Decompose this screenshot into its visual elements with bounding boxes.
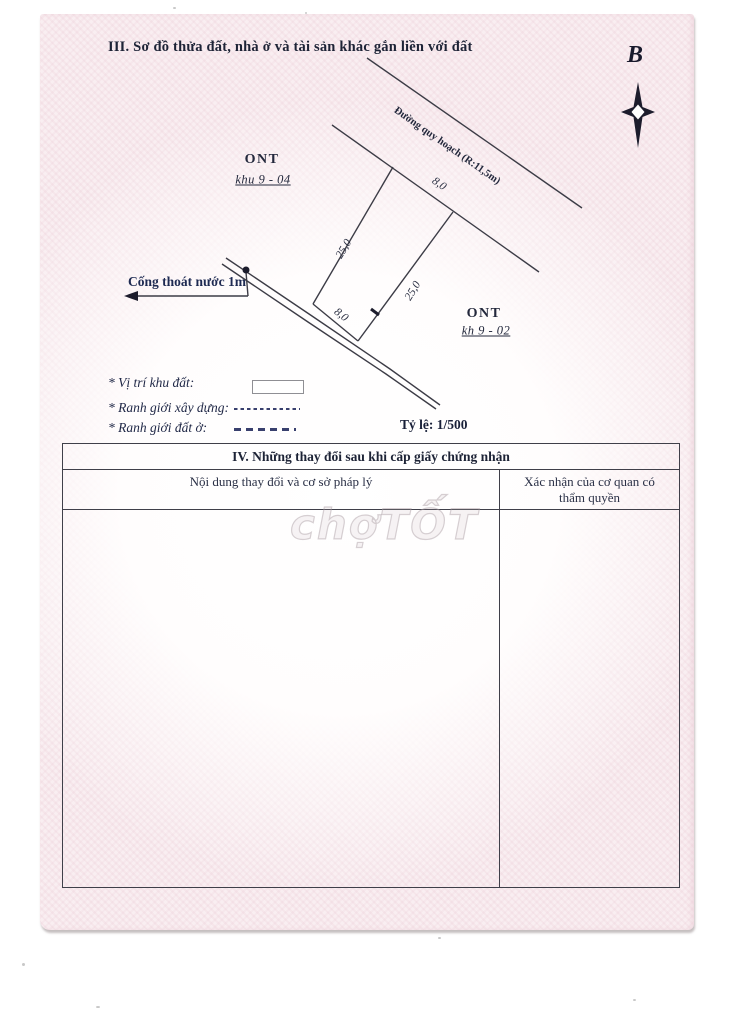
zone-right-name: ONT xyxy=(467,306,502,322)
legend-item-residential-boundary: * Ranh giới đất ở: xyxy=(108,420,207,436)
paper-sheet: III. Sơ đồ thửa đất, nhà ở và tài sản kh… xyxy=(40,14,694,930)
road-upper-edge-line xyxy=(367,58,582,208)
changes-table-col-authority: Xác nhận của cơ quan có thẩm quyền xyxy=(500,470,679,888)
drain-callout-riser xyxy=(246,272,248,296)
build-boundary-dash-swatch xyxy=(234,408,300,410)
scan-speck xyxy=(22,963,25,966)
parcel-right-side-line xyxy=(358,212,453,341)
scan-speck xyxy=(173,7,176,9)
scan-speck xyxy=(438,937,441,939)
col-header-authority: Xác nhận của cơ quan có thẩm quyền xyxy=(500,470,679,510)
parcel-left-side-line xyxy=(313,167,393,304)
site-location-box-swatch xyxy=(252,380,304,394)
zone-left-name: ONT xyxy=(245,152,280,168)
legend-item-site-location: * Vị trí khu đất: xyxy=(108,375,194,391)
chotot-watermark: chợTỐT xyxy=(290,500,479,549)
zone-right-code: kh 9 - 02 xyxy=(462,324,511,339)
drain-label: Cống thoát nước 1m xyxy=(128,274,246,290)
map-scale-note: Tỷ lệ: 1/500 xyxy=(400,417,468,433)
drain-arrowhead-icon xyxy=(124,291,138,301)
scanned-certificate-page: { "page": { "section3_title": "III. Sơ đ… xyxy=(0,0,744,1024)
road-lower-edge-line xyxy=(332,125,539,272)
survey-tick-mark xyxy=(371,309,379,315)
zone-left-code: khu 9 - 04 xyxy=(235,173,290,188)
scan-speck xyxy=(96,1006,100,1008)
drain-point-dot xyxy=(243,267,250,274)
scan-speck xyxy=(305,12,307,14)
section4-title: IV. Những thay đổi sau khi cấp giấy chứn… xyxy=(63,444,679,470)
scan-speck xyxy=(633,999,636,1001)
residential-boundary-dash-swatch xyxy=(234,428,296,431)
legend-item-build-boundary: * Ranh giới xây dựng: xyxy=(108,400,229,416)
